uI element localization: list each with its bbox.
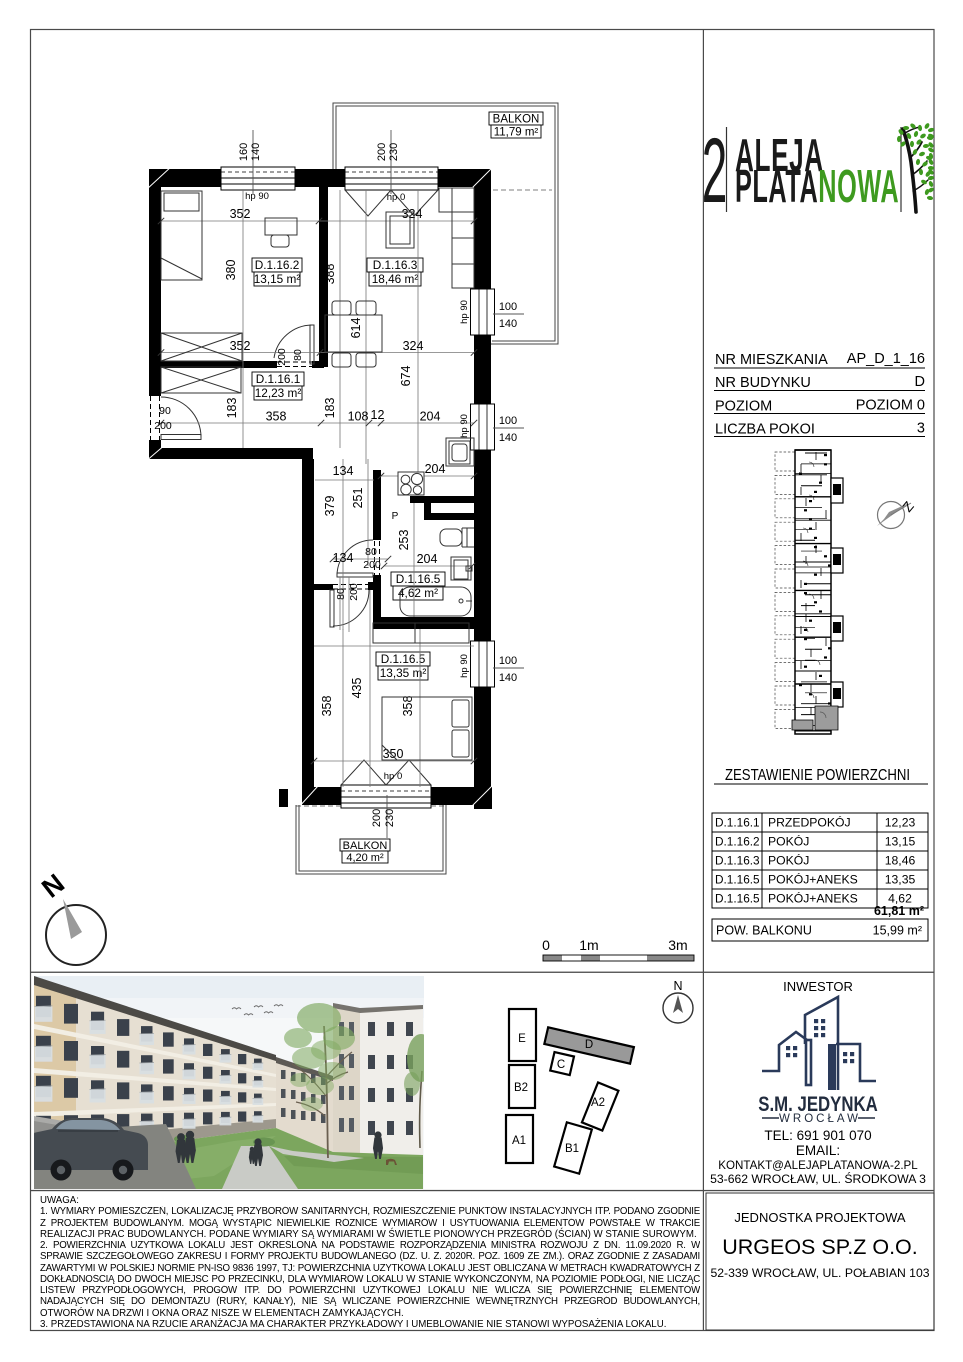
svg-text:200: 200 (276, 348, 288, 366)
svg-text:D.1.16.2: D.1.16.2 (255, 258, 300, 272)
svg-text:183: 183 (323, 398, 337, 419)
svg-text:D.1.16.1: D.1.16.1 (256, 372, 301, 386)
svg-text:POZIOM: POZIOM (715, 399, 772, 415)
svg-text:674: 674 (399, 366, 413, 387)
svg-text:JEDNOSTKA PROJEKTOWA: JEDNOSTKA PROJEKTOWA (734, 1210, 906, 1225)
svg-text:200: 200 (376, 143, 388, 161)
svg-text:80: 80 (365, 546, 377, 558)
svg-text:LICZBA POKOI: LICZBA POKOI (715, 422, 815, 438)
svg-text:A2: A2 (591, 1097, 605, 1109)
svg-text:POKÓJ+ANEKS: POKÓJ+ANEKS (768, 891, 858, 906)
svg-text:hp 90: hp 90 (245, 191, 269, 202)
svg-text:NR BUDYNKU: NR BUDYNKU (715, 375, 811, 391)
svg-text:D.1.16.5: D.1.16.5 (381, 652, 426, 666)
svg-text:3m: 3m (668, 937, 687, 953)
svg-text:B2: B2 (514, 1082, 528, 1094)
svg-text:KONTAKT@ALEJAPLATANOWA-2.PL: KONTAKT@ALEJAPLATANOWA-2.PL (718, 1159, 918, 1172)
svg-text:P: P (392, 511, 399, 522)
svg-text:11,79 m²: 11,79 m² (494, 127, 539, 139)
svg-text:134: 134 (333, 464, 354, 478)
svg-text:388: 388 (323, 264, 337, 285)
svg-text:358: 358 (266, 410, 287, 424)
svg-text:15,99 m²: 15,99 m² (873, 924, 922, 938)
svg-text:3: 3 (917, 421, 925, 437)
svg-text:253: 253 (397, 530, 411, 551)
svg-text:18,46 m²: 18,46 m² (372, 272, 419, 286)
svg-text:4,20 m²: 4,20 m² (346, 852, 384, 864)
svg-text:80: 80 (292, 349, 304, 361)
svg-text:100: 100 (499, 655, 517, 667)
svg-text:BALKON: BALKON (493, 114, 540, 126)
svg-text:D.1.16.3: D.1.16.3 (715, 854, 760, 868)
svg-text:D.1.16.5: D.1.16.5 (715, 892, 760, 906)
svg-text:D.1.16.1: D.1.16.1 (715, 816, 760, 830)
svg-text:12: 12 (371, 408, 385, 422)
svg-text:hp 0: hp 0 (384, 771, 403, 782)
svg-text:13,15: 13,15 (885, 835, 916, 849)
svg-text:D: D (585, 1039, 593, 1051)
svg-text:380: 380 (224, 260, 238, 281)
svg-text:204: 204 (420, 410, 441, 424)
svg-text:251: 251 (351, 488, 365, 509)
svg-text:1m: 1m (579, 937, 598, 953)
svg-text:90: 90 (159, 405, 171, 417)
svg-text:A1: A1 (512, 1135, 526, 1147)
svg-text:435: 435 (350, 678, 364, 699)
svg-text:hp 90: hp 90 (459, 654, 470, 678)
svg-text:NR MIESZKANIA: NR MIESZKANIA (715, 352, 828, 368)
svg-text:D.1.16.3: D.1.16.3 (373, 258, 418, 272)
svg-text:D: D (915, 374, 925, 390)
svg-text:53-662 WROCŁAW, UL. ŚRODKOWA 3: 53-662 WROCŁAW, UL. ŚRODKOWA 3 (710, 1171, 926, 1186)
svg-text:13,35 m²: 13,35 m² (380, 666, 427, 680)
svg-text:614: 614 (349, 318, 363, 339)
svg-text:EMAIL:: EMAIL: (796, 1143, 840, 1158)
svg-text:2: 2 (702, 120, 728, 222)
svg-text:160: 160 (238, 143, 250, 161)
svg-text:100: 100 (499, 301, 517, 313)
svg-text:POKÓJ: POKÓJ (768, 834, 809, 849)
svg-text:AP_D_1_16: AP_D_1_16 (847, 351, 925, 367)
svg-text:TEL: 691 901 070: TEL: 691 901 070 (764, 1128, 871, 1143)
svg-text:D.1.16.5: D.1.16.5 (715, 873, 760, 887)
svg-text:BALKON: BALKON (343, 840, 388, 852)
svg-text:E: E (518, 1033, 526, 1045)
svg-text:18,46: 18,46 (885, 854, 916, 868)
svg-text:INWESTOR: INWESTOR (783, 979, 853, 994)
svg-text:134: 134 (333, 551, 354, 565)
svg-text:0: 0 (542, 937, 550, 953)
svg-text:140: 140 (499, 432, 517, 444)
svg-text:URGEOS SP.Z O.O.: URGEOS SP.Z O.O. (722, 1235, 918, 1259)
svg-text:358: 358 (401, 696, 415, 717)
svg-text:204: 204 (417, 552, 438, 566)
svg-text:POKÓJ: POKÓJ (768, 853, 809, 868)
svg-text:200: 200 (154, 420, 172, 432)
svg-text:358: 358 (320, 696, 334, 717)
svg-text:WROCŁAW: WROCŁAW (779, 1113, 861, 1125)
svg-text:379: 379 (323, 496, 337, 517)
svg-text:PRZEDPOKÓJ: PRZEDPOKÓJ (768, 815, 851, 830)
svg-text:B1: B1 (565, 1143, 579, 1155)
svg-text:100: 100 (499, 415, 517, 427)
svg-text:hp 90: hp 90 (459, 414, 470, 438)
svg-text:200: 200 (371, 809, 383, 827)
svg-text:140: 140 (499, 672, 517, 684)
svg-text:D.1.16.2: D.1.16.2 (715, 835, 760, 849)
svg-text:200: 200 (363, 559, 381, 571)
svg-text:52-339 WROCŁAW, UL. POŁABIAN 1: 52-339 WROCŁAW, UL. POŁABIAN 103 (710, 1266, 929, 1280)
svg-text:324: 324 (403, 339, 424, 353)
svg-text:204: 204 (425, 462, 446, 476)
svg-text:183: 183 (225, 398, 239, 419)
svg-text:D.1.16.5: D.1.16.5 (396, 572, 441, 586)
svg-text:140: 140 (250, 143, 262, 161)
svg-text:PLATANOWA: PLATANOWA (735, 160, 899, 212)
svg-text:230: 230 (384, 809, 396, 827)
svg-text:140: 140 (499, 318, 517, 330)
svg-text:108: 108 (348, 410, 369, 424)
svg-text:POKÓJ+ANEKS: POKÓJ+ANEKS (768, 872, 858, 887)
svg-text:POZIOM 0: POZIOM 0 (856, 398, 925, 414)
svg-text:4,62 m²: 4,62 m² (398, 586, 438, 600)
svg-text:N: N (673, 979, 682, 993)
svg-text:61,81 m²: 61,81 m² (874, 904, 924, 918)
svg-text:C: C (557, 1059, 565, 1071)
svg-text:230: 230 (388, 143, 400, 161)
svg-text:Z: Z (899, 498, 917, 515)
svg-text:POW. BALKONU: POW. BALKONU (716, 924, 812, 938)
svg-text:200: 200 (348, 583, 360, 601)
svg-text:352: 352 (230, 339, 251, 353)
svg-text:324: 324 (402, 207, 423, 221)
svg-text:352: 352 (230, 207, 251, 221)
svg-text:N: N (36, 868, 70, 904)
svg-text:hp 0: hp 0 (387, 192, 406, 203)
svg-text:13,35: 13,35 (885, 873, 916, 887)
svg-text:12,23 m²: 12,23 m² (255, 386, 302, 400)
svg-text:12,23: 12,23 (885, 816, 916, 830)
svg-text:80: 80 (335, 588, 347, 600)
svg-text:ZESTAWIENIE POWIERZCHNI: ZESTAWIENIE POWIERZCHNI (725, 767, 910, 784)
svg-text:13,15 m²: 13,15 m² (254, 272, 301, 286)
svg-text:hp 90: hp 90 (459, 300, 470, 324)
